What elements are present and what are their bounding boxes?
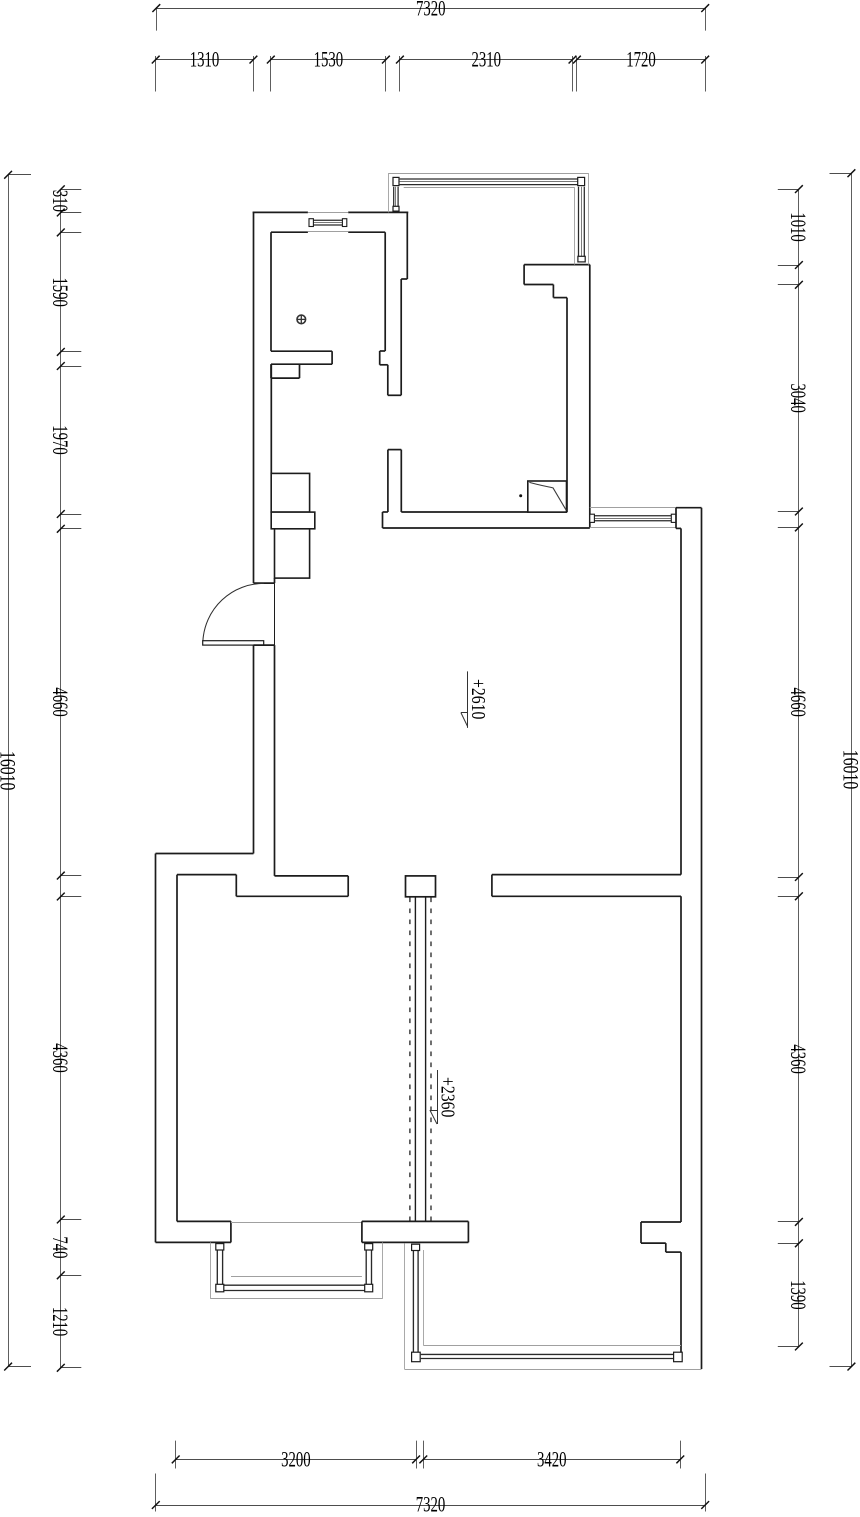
svg-text:1210: 1210 [48, 1307, 73, 1336]
svg-text:1390: 1390 [786, 1280, 811, 1309]
svg-text:1530: 1530 [314, 47, 344, 72]
svg-text:2310: 2310 [471, 47, 501, 72]
svg-text:1310: 1310 [190, 47, 220, 72]
svg-text:3420: 3420 [537, 1446, 567, 1471]
svg-text:4360: 4360 [48, 1043, 73, 1072]
svg-text:4660: 4660 [786, 688, 811, 717]
svg-text:1720: 1720 [626, 47, 656, 72]
svg-text:740: 740 [48, 1236, 73, 1258]
svg-text:7320: 7320 [416, 1492, 446, 1512]
svg-text:4660: 4660 [48, 687, 73, 716]
svg-text:1010: 1010 [786, 212, 811, 241]
svg-text:1970: 1970 [48, 425, 73, 454]
svg-text:1590: 1590 [48, 277, 73, 306]
svg-text:3040: 3040 [786, 383, 811, 412]
svg-text:7320: 7320 [416, 0, 446, 21]
svg-text:3200: 3200 [281, 1446, 311, 1471]
svg-text:16010: 16010 [839, 750, 860, 790]
svg-text:4360: 4360 [786, 1044, 811, 1073]
svg-text:310: 310 [48, 190, 73, 212]
svg-text:16010: 16010 [0, 751, 20, 791]
